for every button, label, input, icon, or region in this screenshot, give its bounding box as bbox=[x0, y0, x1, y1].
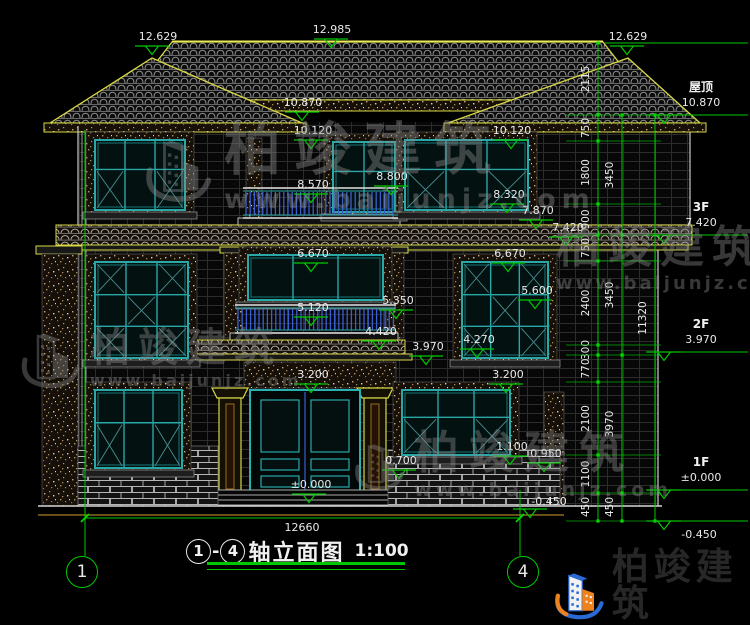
window bbox=[83, 254, 200, 367]
house-elevation-svg: 12.62912.98512.62910.87010.12010.1208.57… bbox=[0, 0, 750, 625]
elevation-label: 6.670 bbox=[297, 247, 329, 260]
level-elevation: -0.450 bbox=[681, 528, 716, 541]
level-marker bbox=[647, 521, 681, 530]
title-axis-end: 4 bbox=[220, 539, 245, 564]
corner-pier bbox=[42, 254, 78, 506]
elevation-label: 10.120 bbox=[493, 124, 532, 137]
elevation-label: -0.450 bbox=[531, 495, 566, 508]
elevation-label: 7.870 bbox=[522, 204, 554, 217]
chain-dim-label: 3450 bbox=[604, 282, 616, 309]
company-logo: 柏竣建筑 www.baijunjz.com bbox=[552, 548, 750, 625]
level-elevation: 3.970 bbox=[685, 333, 717, 346]
chain-dim-label: 300 bbox=[580, 340, 592, 360]
chain-dim-label: 750 bbox=[580, 238, 592, 258]
level-elevation: ±0.000 bbox=[681, 471, 722, 484]
title-scale: 1:100 bbox=[355, 541, 409, 561]
chain-dim-label: 770 bbox=[580, 358, 592, 378]
elevation-label: 3.970 bbox=[412, 340, 444, 353]
level-name: 1F bbox=[693, 455, 710, 469]
elevation-label: 4.420 bbox=[365, 325, 397, 338]
third-floor-cornice bbox=[56, 225, 692, 250]
elevation-label: 5.350 bbox=[382, 294, 414, 307]
entrance-canopy bbox=[186, 340, 412, 360]
pier-cap bbox=[36, 246, 82, 254]
chain-dim-label: 11320 bbox=[637, 301, 649, 334]
elevation-label: 8.570 bbox=[297, 178, 329, 191]
level-elevation: 10.870 bbox=[682, 96, 721, 109]
elevation-label: 8.320 bbox=[493, 188, 525, 201]
elevation-label: 6.670 bbox=[494, 247, 526, 260]
elevation-label: 12.629 bbox=[139, 30, 178, 43]
chain-dim-label: 2115 bbox=[580, 66, 592, 93]
elevation-label: 12.629 bbox=[609, 30, 648, 43]
elevation-label: 1.100 bbox=[496, 440, 528, 453]
window bbox=[393, 132, 540, 219]
window bbox=[83, 132, 197, 219]
elevation-label: 5.600 bbox=[521, 284, 553, 297]
elevation-marker bbox=[610, 46, 644, 55]
elevation-label: 3.200 bbox=[297, 368, 329, 381]
chain-dim-label: 2400 bbox=[580, 290, 592, 317]
elevation-label: 8.800 bbox=[376, 170, 408, 183]
chain-dim-label: 1100 bbox=[580, 461, 592, 488]
title-axis-start: 1 bbox=[186, 539, 211, 564]
elevation-label: 3.200 bbox=[492, 368, 524, 381]
axis-bubble-4: 4 bbox=[507, 556, 539, 588]
chain-dim-label: 1800 bbox=[580, 159, 592, 186]
chain-dim-label: 3970 bbox=[604, 411, 616, 438]
elevation-label: 0.950 bbox=[530, 447, 562, 460]
chain-dim-label: 900 bbox=[580, 209, 592, 229]
company-name: 柏竣建筑 bbox=[612, 548, 750, 622]
elevation-marker bbox=[513, 509, 547, 518]
chain-dim-label: 3450 bbox=[604, 162, 616, 189]
window bbox=[83, 382, 194, 477]
elevation-label: 4.270 bbox=[463, 333, 495, 346]
axis-bubble-1: 1 bbox=[66, 556, 98, 588]
elevation-label: 10.870 bbox=[284, 96, 323, 109]
chain-dim-label: 750 bbox=[580, 118, 592, 138]
elevation-label: 10.120 bbox=[294, 124, 333, 137]
elevation-drawing-canvas: 12.62912.98512.62910.87010.12010.1208.57… bbox=[0, 0, 750, 625]
chain-dim-label: 2100 bbox=[580, 405, 592, 432]
elevation-label: 12.985 bbox=[313, 23, 352, 36]
chain-dim-label: 450 bbox=[580, 497, 592, 517]
elevation-label: 5.120 bbox=[297, 301, 329, 314]
overall-width-label: 12660 bbox=[285, 521, 320, 534]
level-name: 2F bbox=[693, 317, 710, 331]
company-logo-icon bbox=[552, 565, 606, 623]
window bbox=[450, 254, 560, 367]
elevation-label: ±0.000 bbox=[291, 478, 332, 491]
chain-dim-label: 450 bbox=[604, 497, 616, 517]
title-underline bbox=[207, 562, 405, 565]
elevation-label: 0.700 bbox=[385, 454, 417, 467]
level-elevation: 7.420 bbox=[685, 216, 717, 229]
title-dash: - bbox=[212, 541, 219, 562]
level-name: 屋顶 bbox=[689, 80, 713, 94]
title-underline-thin bbox=[207, 569, 405, 570]
level-name: 3F bbox=[693, 200, 710, 214]
